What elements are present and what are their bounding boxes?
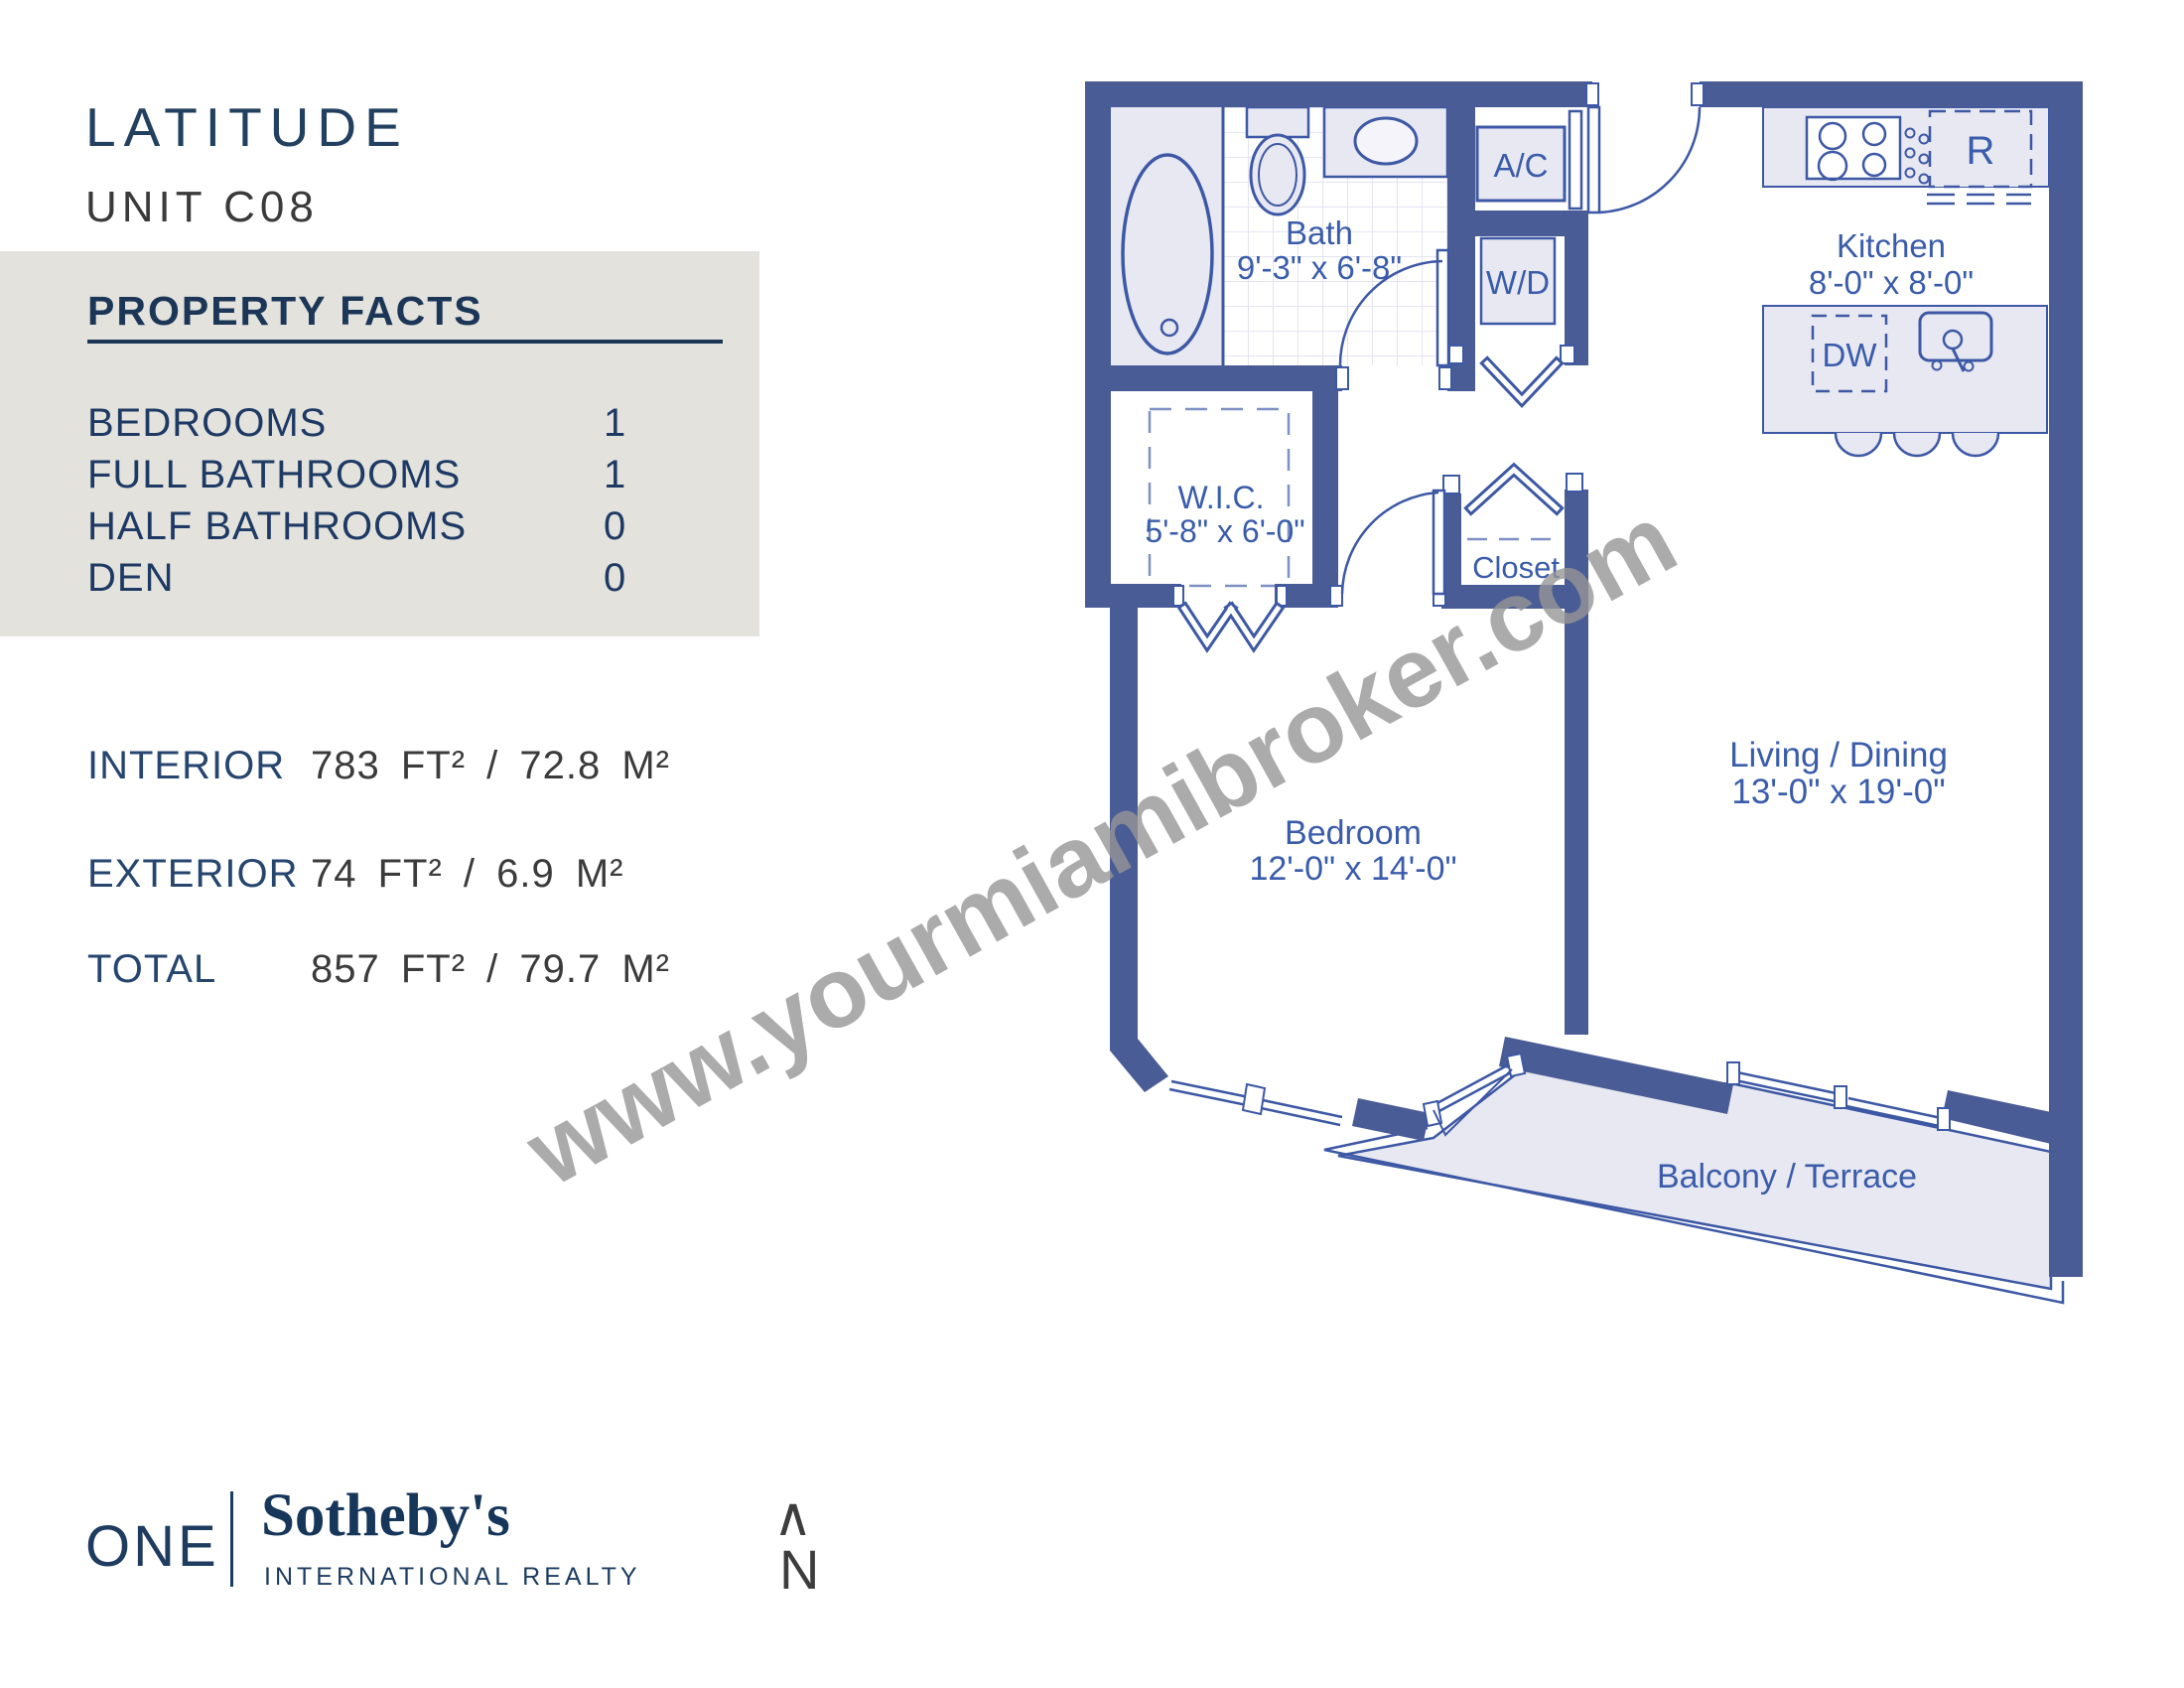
entry-door-arc bbox=[1599, 107, 1700, 212]
wic-label: W.I.C. bbox=[1177, 480, 1264, 515]
wall bbox=[1110, 1039, 1168, 1092]
fridge-label: R bbox=[1967, 129, 1995, 173]
bedroom-dims: 12'-0" x 14'-0" bbox=[1249, 850, 1456, 888]
window-jamb bbox=[1938, 1108, 1950, 1130]
vanity-sink-icon bbox=[1355, 118, 1417, 164]
wall bbox=[1085, 81, 1111, 608]
bedroom-window bbox=[1169, 1081, 1249, 1105]
living-label: Living / Dining bbox=[1729, 736, 1948, 774]
cooktop-icon bbox=[1807, 117, 1900, 179]
wall bbox=[1085, 81, 1592, 107]
entry-door-leaf bbox=[1588, 107, 1599, 212]
ac-label: A/C bbox=[1493, 147, 1548, 184]
window-jamb bbox=[1727, 1062, 1739, 1084]
wall bbox=[1700, 81, 2083, 107]
bedroom-door-leaf bbox=[1433, 491, 1444, 594]
window-mullion bbox=[1243, 1084, 1265, 1114]
closet-bifold-door bbox=[1471, 470, 1557, 508]
bath-door-leaf bbox=[1437, 250, 1448, 365]
kitchen-dims: 8'-0" x 8'-0" bbox=[1809, 264, 1974, 301]
bedroom-door-arc bbox=[1342, 492, 1438, 594]
stool-icon bbox=[1836, 433, 1881, 456]
wall bbox=[1085, 584, 1181, 608]
floorplan-sheet: { "header": { "building": "LATITUDE", "u… bbox=[0, 0, 2184, 1688]
bath-label: Bath bbox=[1286, 214, 1353, 251]
dishwasher-label: DW bbox=[1823, 337, 1878, 373]
wic-dims: 5'-8" x 6'-0" bbox=[1145, 513, 1304, 549]
stool-icon bbox=[1953, 433, 1998, 456]
wic-bifold-door bbox=[1184, 609, 1278, 643]
living-dims: 13'-0" x 19'-0" bbox=[1731, 773, 1945, 811]
toilet-tank-icon bbox=[1247, 107, 1308, 137]
bedroom-label: Bedroom bbox=[1285, 814, 1422, 852]
wall bbox=[1565, 211, 1588, 365]
wall bbox=[2049, 81, 2083, 1277]
wall bbox=[1085, 365, 1342, 391]
window-jamb bbox=[1835, 1086, 1846, 1108]
bath-dims: 9'-3" x 6'-8" bbox=[1237, 249, 1402, 286]
kitchen-island bbox=[1763, 306, 2047, 433]
tub-room-floor bbox=[1111, 107, 1223, 365]
wd-bifold-door bbox=[1487, 363, 1557, 400]
wd-label: W/D bbox=[1486, 264, 1550, 301]
balcony-label: Balcony / Terrace bbox=[1657, 1158, 1917, 1196]
stool-icon bbox=[1894, 433, 1940, 456]
wall bbox=[1312, 365, 1338, 608]
bedroom-window bbox=[1261, 1100, 1342, 1125]
kitchen-label: Kitchen bbox=[1837, 227, 1946, 264]
entry-side-frame bbox=[1570, 111, 1581, 209]
